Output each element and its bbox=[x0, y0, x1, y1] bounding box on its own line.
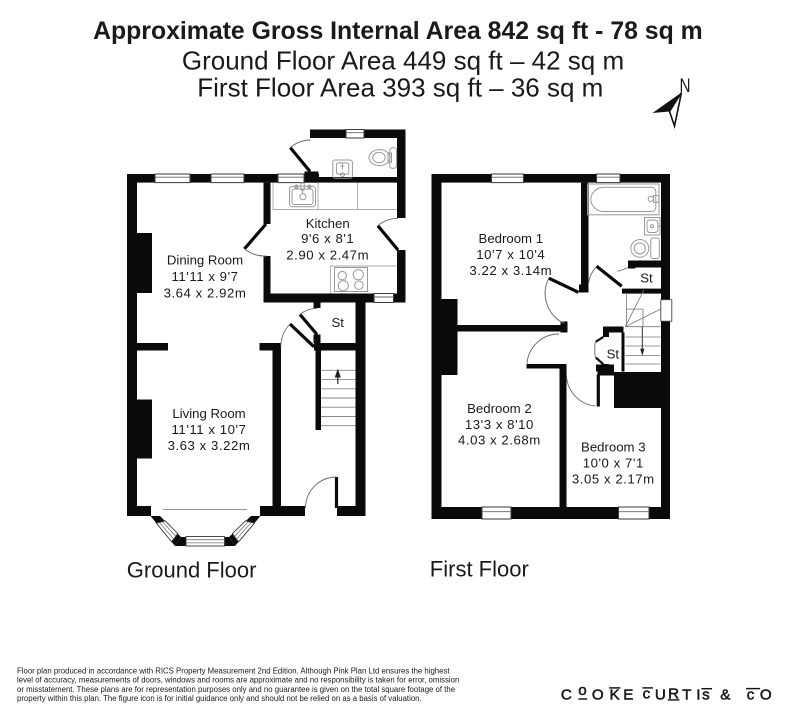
svg-text:C: C bbox=[561, 687, 572, 704]
svg-text:Ground Floor: Ground Floor bbox=[127, 557, 257, 582]
svg-text:&: & bbox=[720, 687, 730, 704]
svg-text:First Floor Area 393 sq ft – 3: First Floor Area 393 sq ft – 36 sq m bbox=[197, 73, 603, 103]
svg-text:Bedroom 1: Bedroom 1 bbox=[479, 231, 544, 246]
svg-text:3.22 x 3.14m: 3.22 x 3.14m bbox=[469, 263, 552, 278]
svg-text:U: U bbox=[655, 687, 666, 704]
svg-text:St: St bbox=[607, 347, 620, 362]
svg-text:Bedroom 2: Bedroom 2 bbox=[467, 401, 532, 416]
svg-text:T: T bbox=[682, 687, 691, 704]
svg-text:3.64 x 2.92m: 3.64 x 2.92m bbox=[164, 285, 247, 300]
svg-text:St: St bbox=[640, 270, 653, 285]
svg-text:or misstatement. These plans a: or misstatement. These plans are for rep… bbox=[17, 685, 455, 694]
svg-text:3.05 x 2.17m: 3.05 x 2.17m bbox=[572, 472, 655, 487]
svg-text:E: E bbox=[623, 687, 633, 704]
svg-text:2.90 x 2.47m: 2.90 x 2.47m bbox=[286, 248, 369, 263]
svg-text:Living Room: Living Room bbox=[172, 406, 245, 421]
svg-text:o: o bbox=[578, 682, 586, 699]
svg-text:Ground Floor Area 449 sq ft –: Ground Floor Area 449 sq ft – 42 sq m bbox=[182, 45, 624, 75]
svg-text:11'11 x 9'7: 11'11 x 9'7 bbox=[171, 269, 238, 284]
svg-text:11'11 x 10'7: 11'11 x 10'7 bbox=[172, 422, 247, 437]
svg-text:First Floor: First Floor bbox=[430, 556, 529, 581]
svg-text:4.03 x 2.68m: 4.03 x 2.68m bbox=[458, 433, 541, 448]
svg-text:O: O bbox=[760, 687, 772, 704]
svg-text:Approximate Gross Internal Are: Approximate Gross Internal Area 842 sq f… bbox=[93, 18, 703, 45]
svg-text:9'6 x 8'1: 9'6 x 8'1 bbox=[301, 231, 354, 246]
svg-text:K: K bbox=[610, 687, 620, 704]
svg-text:Bedroom 3: Bedroom 3 bbox=[581, 440, 646, 455]
svg-text:Kitchen: Kitchen bbox=[306, 216, 350, 231]
svg-text:10'0 x 7'1: 10'0 x 7'1 bbox=[583, 456, 644, 471]
svg-text:property within this plan. The: property within this plan. The figure ic… bbox=[17, 694, 422, 703]
svg-text:13'3 x 8'10: 13'3 x 8'10 bbox=[465, 417, 534, 432]
svg-text:Dining Room: Dining Room bbox=[167, 252, 243, 267]
svg-text:O: O bbox=[592, 687, 604, 704]
svg-text:I: I bbox=[696, 687, 700, 704]
svg-text:level of accuracy, measurement: level of accuracy, measurements of doors… bbox=[17, 676, 459, 685]
svg-text:St: St bbox=[331, 315, 344, 330]
svg-text:3.63 x 3.22m: 3.63 x 3.22m bbox=[168, 438, 251, 453]
svg-text:Floor plan produced in accorda: Floor plan produced in accordance with R… bbox=[17, 666, 450, 675]
svg-text:10'7 x 10'4: 10'7 x 10'4 bbox=[476, 247, 545, 262]
